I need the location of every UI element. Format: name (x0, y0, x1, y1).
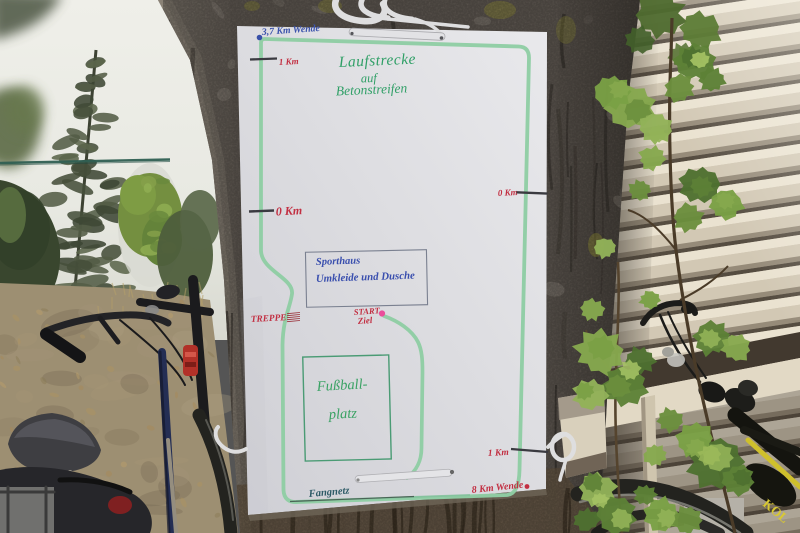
svg-text:Betonstreifen: Betonstreifen (335, 80, 407, 98)
svg-text:Laufstrecke: Laufstrecke (337, 51, 416, 71)
svg-text:1 Km: 1 Km (279, 56, 299, 67)
svg-text:Fußball-: Fußball- (315, 376, 368, 395)
svg-text:0 Km: 0 Km (275, 203, 302, 218)
svg-text:Ziel: Ziel (356, 315, 373, 326)
svg-text:TREPPE: TREPPE (251, 313, 287, 325)
svg-text:0 Km: 0 Km (498, 187, 518, 198)
svg-text:platz: platz (327, 406, 357, 424)
svg-text:1 Km: 1 Km (488, 448, 509, 459)
svg-text:Sporthaus: Sporthaus (316, 255, 361, 268)
